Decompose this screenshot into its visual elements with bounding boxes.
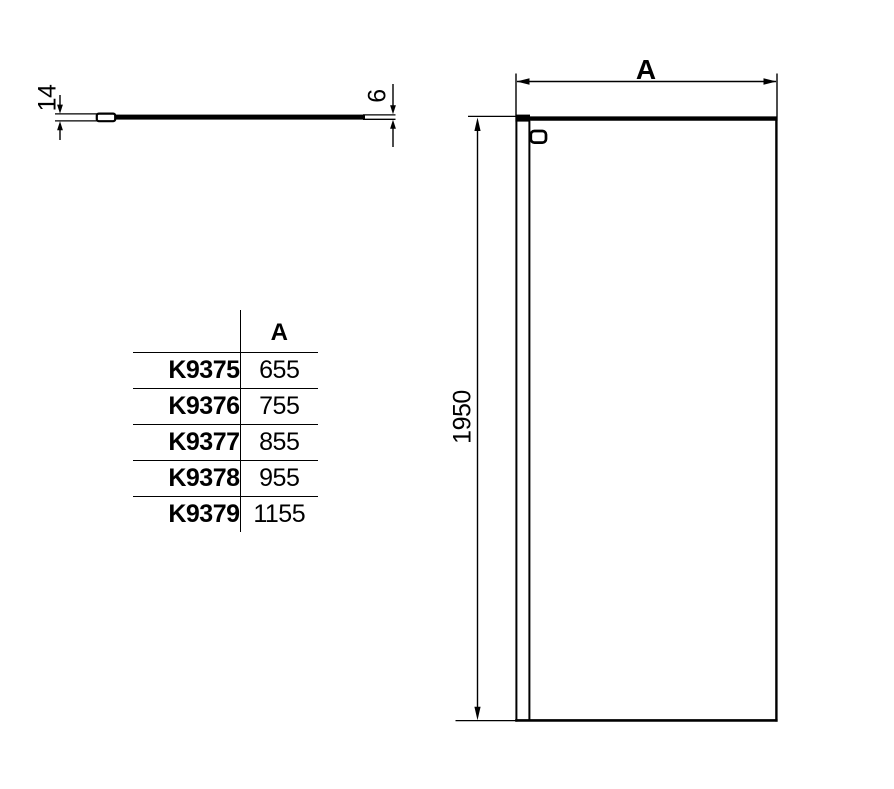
profile-clamp [97,114,115,122]
a-column-header: A [240,310,318,352]
table-row: K9375 655 [133,352,318,388]
plan-view: 14 6 [34,84,396,147]
product-code-cell: K9379 [133,496,240,532]
arrowhead-6-up [390,120,396,129]
table-row: K9376 755 [133,388,318,424]
spec-table: A K9375 655 K9376 755 K9377 855 K9378 95… [133,310,318,532]
fixing-bracket [531,131,546,143]
table-row: K9378 955 [133,460,318,496]
glass-panel-section [114,115,366,120]
product-code-cell: K9377 [133,424,240,460]
front-view: A 1950 [449,54,778,722]
table-header-row: A [133,310,318,352]
arrowhead-14-up [57,121,63,130]
width-value-cell: 855 [240,424,318,460]
width-dimension-label: A [636,54,656,85]
technical-drawing: 14 6 A [0,0,894,789]
arrowhead-height-down [474,707,480,721]
wall-profile-cap [515,115,530,122]
arrowhead-height-up [474,118,480,132]
width-value-cell: 1155 [240,496,318,532]
table-row: K9379 1155 [133,496,318,532]
dimension-14-label: 14 [34,84,62,111]
product-code-cell: K9378 [133,460,240,496]
width-value-cell: 955 [240,460,318,496]
product-code-cell: K9375 [133,352,240,388]
arrowhead-width-left [517,78,530,84]
height-dimension-label: 1950 [449,390,477,444]
code-column-header [133,310,240,352]
product-code-cell: K9376 [133,388,240,424]
table-row: K9377 855 [133,424,318,460]
width-value-cell: 755 [240,388,318,424]
arrowhead-width-right [764,78,777,84]
width-value-cell: 655 [240,352,318,388]
dimension-6-label: 6 [364,89,392,102]
arrowhead-6-down [390,105,396,114]
